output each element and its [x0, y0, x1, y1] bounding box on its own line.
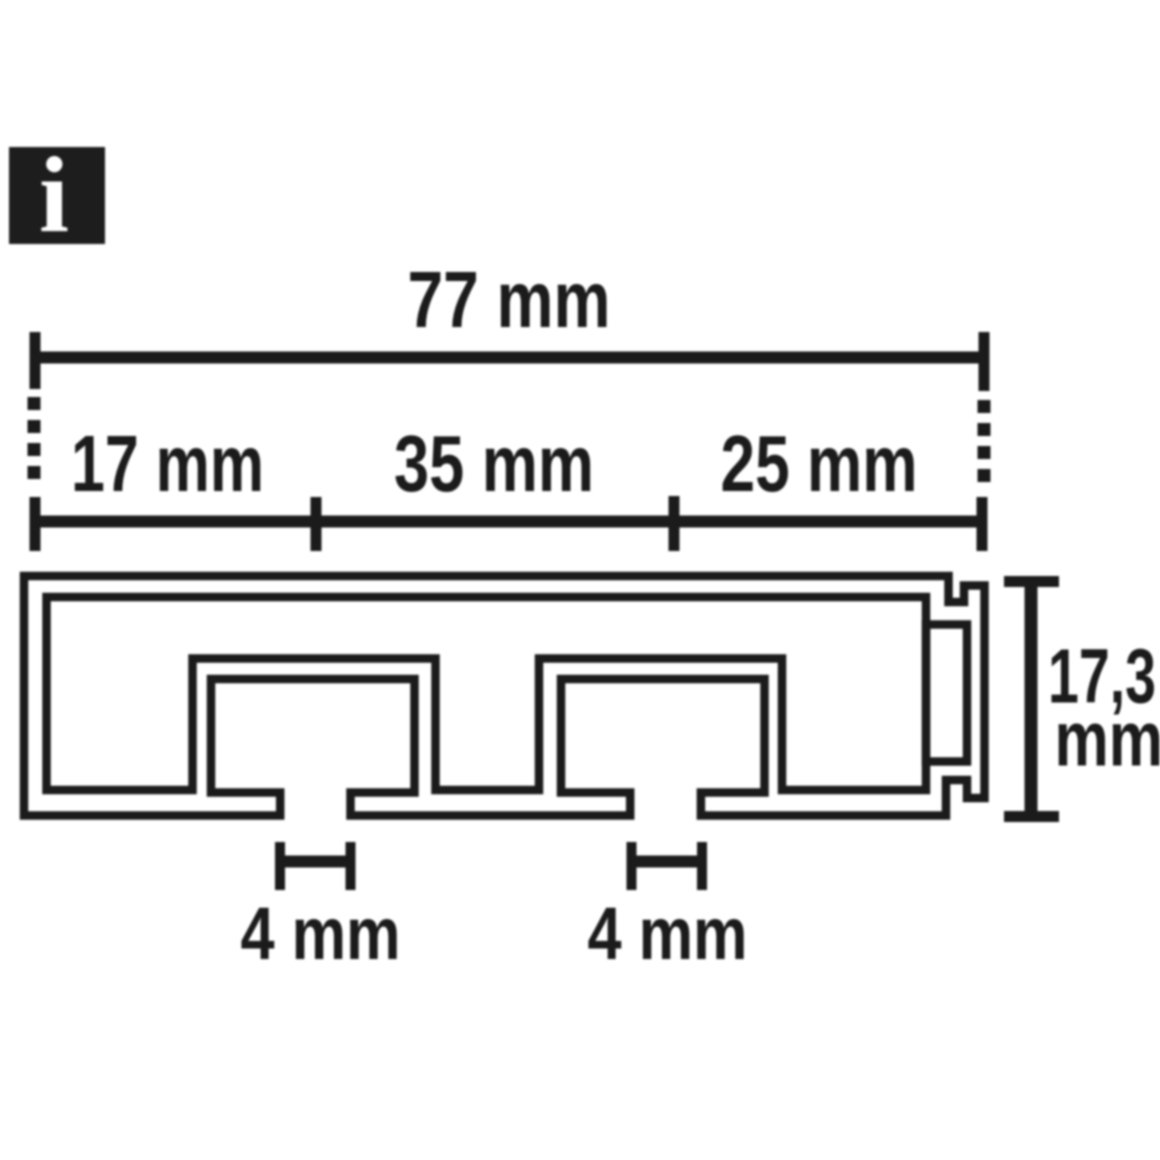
svg-text:17 mm: 17 mm — [71, 419, 264, 508]
svg-text:mm: mm — [1055, 695, 1160, 783]
svg-text:4 mm: 4 mm — [588, 892, 748, 975]
svg-text:i: i — [39, 136, 69, 255]
svg-text:25 mm: 25 mm — [721, 419, 918, 508]
svg-text:35 mm: 35 mm — [394, 419, 594, 508]
svg-text:77 mm: 77 mm — [408, 255, 611, 344]
svg-text:4 mm: 4 mm — [241, 892, 401, 975]
